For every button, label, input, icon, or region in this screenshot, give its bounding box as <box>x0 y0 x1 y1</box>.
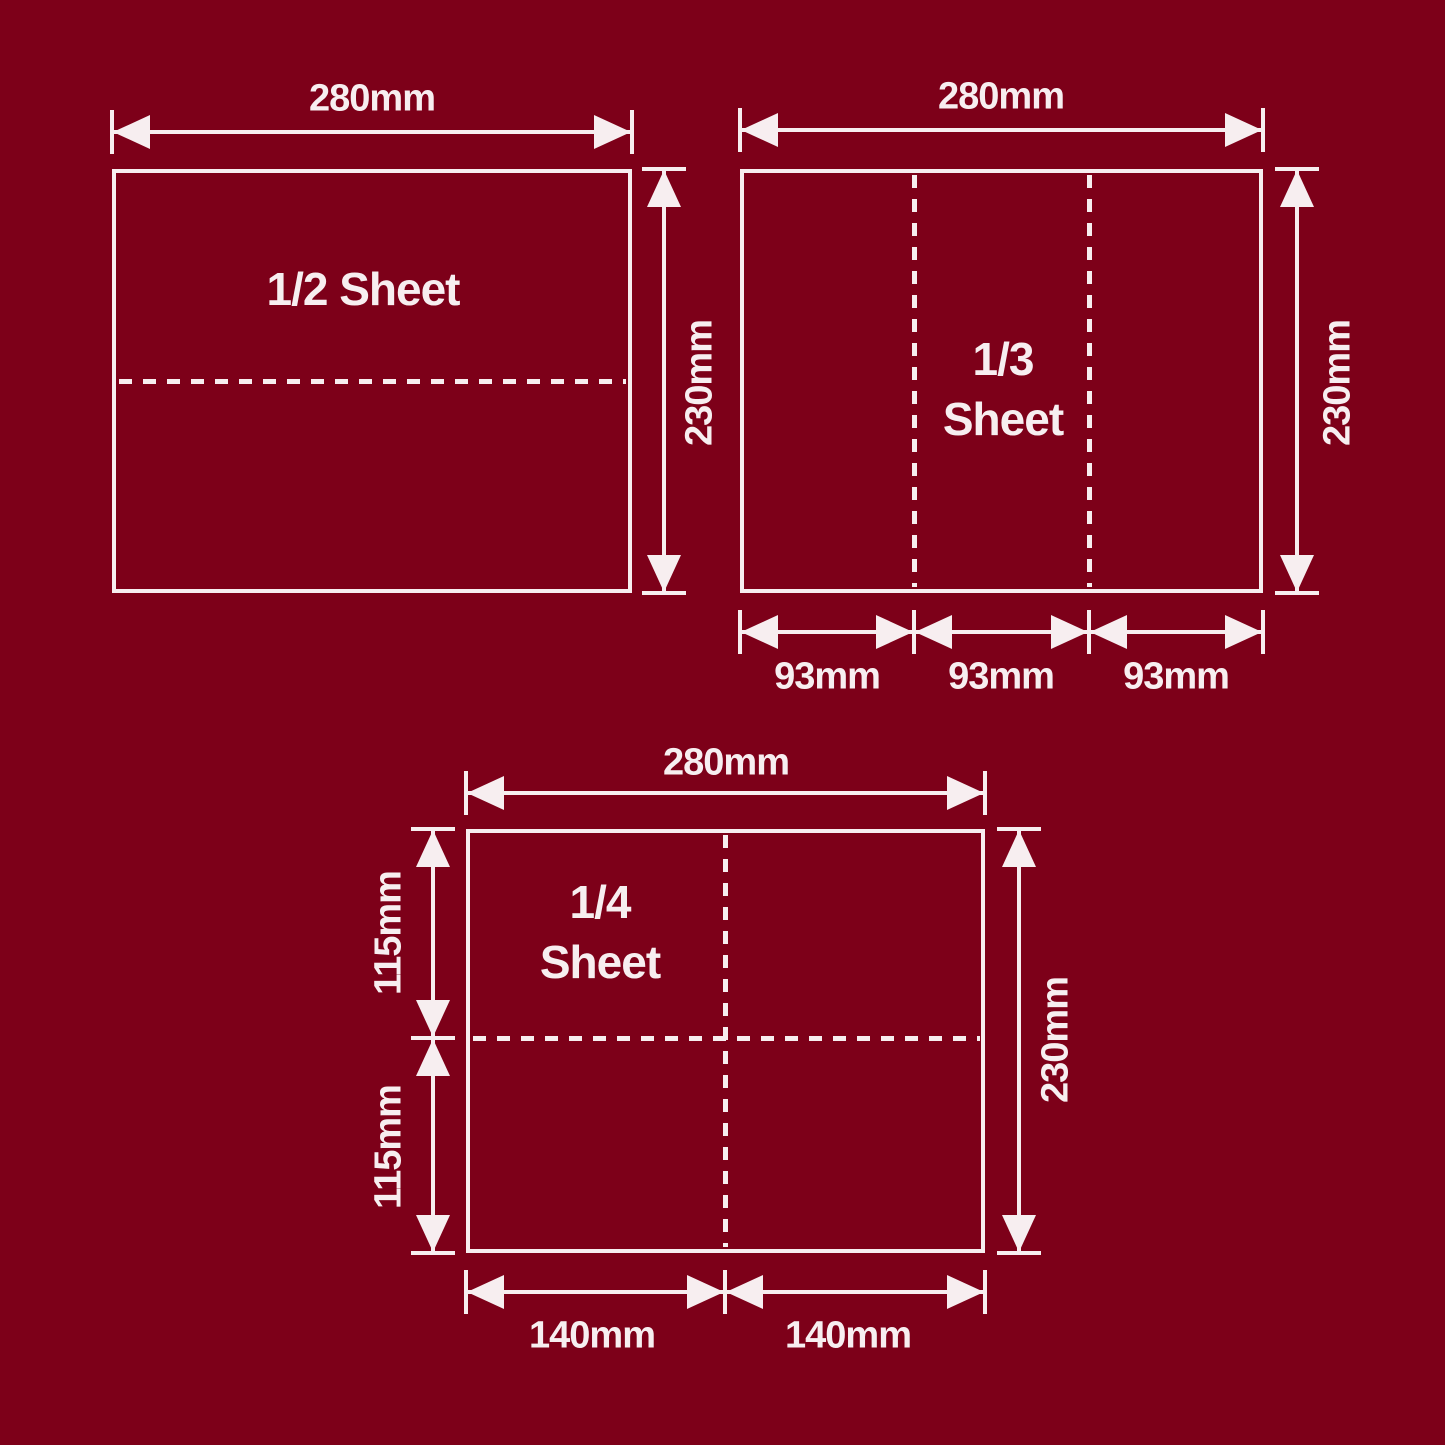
half-sheet-height-dimension <box>662 169 666 593</box>
arrowhead-left-icon <box>741 113 778 147</box>
arrowhead-left-icon <box>467 1275 504 1309</box>
arrowhead-down-icon <box>1280 555 1314 592</box>
arrowhead-right-icon <box>594 115 631 149</box>
quarter-sheet-left-segment-label: 115mm <box>368 1085 411 1209</box>
third-sheet-height-dimension <box>1295 169 1299 593</box>
quarter-sheet-title: 1/4 Sheet <box>540 872 660 992</box>
third-sheet-height-label: 230mm <box>1317 320 1360 446</box>
arrowhead-down-icon <box>647 555 681 592</box>
arrowhead-up-icon <box>1280 170 1314 207</box>
arrowhead-left-icon <box>113 115 150 149</box>
arrowhead-up-icon <box>416 830 450 867</box>
arrowhead-left-icon <box>467 776 504 810</box>
half-sheet-height-label: 230mm <box>679 320 722 446</box>
third-sheet-width-dimension <box>740 128 1263 132</box>
third-sheet-fold-line <box>1087 175 1092 587</box>
quarter-sheet-width-dimension <box>466 791 985 795</box>
arrowhead-up-icon <box>1002 830 1036 867</box>
quarter-sheet-bottom-segment-dimension <box>466 1290 725 1294</box>
third-sheet-segment-label: 93mm <box>948 656 1054 699</box>
third-sheet-segment-dimension <box>740 630 914 634</box>
half-sheet-title: 1/2 Sheet <box>267 259 460 319</box>
third-sheet-width-label: 280mm <box>938 76 1064 119</box>
half-sheet-width-dimension <box>112 130 632 134</box>
third-sheet-title-line1: 1/3 <box>943 329 1063 389</box>
third-sheet-segment-dimension <box>914 630 1089 634</box>
arrowhead-up-icon <box>416 1039 450 1076</box>
quarter-sheet-left-segment-label: 115mm <box>368 871 411 995</box>
third-sheet-segment-label: 93mm <box>774 656 880 699</box>
arrowhead-up-icon <box>647 170 681 207</box>
quarter-sheet-bottom-segment-dimension <box>725 1290 985 1294</box>
third-sheet-title-line2: Sheet <box>943 389 1063 449</box>
third-sheet-segment-dimension <box>1089 630 1263 634</box>
half-sheet-width-label: 280mm <box>309 78 435 121</box>
arrowhead-right-icon <box>876 615 913 649</box>
arrowhead-left-icon <box>726 1275 763 1309</box>
third-sheet-fold-line <box>912 175 917 587</box>
quarter-sheet-height-label: 230mm <box>1035 977 1078 1103</box>
arrowhead-down-icon <box>416 1215 450 1252</box>
quarter-sheet-left-segment-dimension <box>431 829 435 1038</box>
quarter-sheet-height-dimension <box>1017 829 1021 1253</box>
arrowhead-right-icon <box>1225 113 1262 147</box>
arrowhead-left-icon <box>915 615 952 649</box>
third-sheet-segment-label: 93mm <box>1123 656 1229 699</box>
arrowhead-down-icon <box>416 1000 450 1037</box>
arrowhead-right-icon <box>947 776 984 810</box>
arrowhead-right-icon <box>947 1275 984 1309</box>
third-sheet-title: 1/3 Sheet <box>943 329 1063 449</box>
arrowhead-left-icon <box>1090 615 1127 649</box>
quarter-sheet-width-label: 280mm <box>663 742 789 785</box>
arrowhead-right-icon <box>687 1275 724 1309</box>
fold-diagram-canvas: 1/2 Sheet 280mm 230mm 1/3 Sheet <box>0 0 1445 1445</box>
quarter-sheet-left-segment-dimension <box>431 1038 435 1253</box>
arrowhead-down-icon <box>1002 1215 1036 1252</box>
quarter-sheet-title-line2: Sheet <box>540 932 660 992</box>
quarter-sheet-bottom-segment-label: 140mm <box>785 1315 911 1358</box>
quarter-sheet-title-line1: 1/4 <box>540 872 660 932</box>
quarter-sheet-fold-line <box>723 835 728 1247</box>
quarter-sheet-fold-line <box>473 1036 980 1041</box>
arrowhead-right-icon <box>1051 615 1088 649</box>
arrowhead-left-icon <box>741 615 778 649</box>
quarter-sheet-bottom-segment-label: 140mm <box>529 1315 655 1358</box>
arrowhead-right-icon <box>1225 615 1262 649</box>
half-sheet-fold-line <box>119 379 626 384</box>
